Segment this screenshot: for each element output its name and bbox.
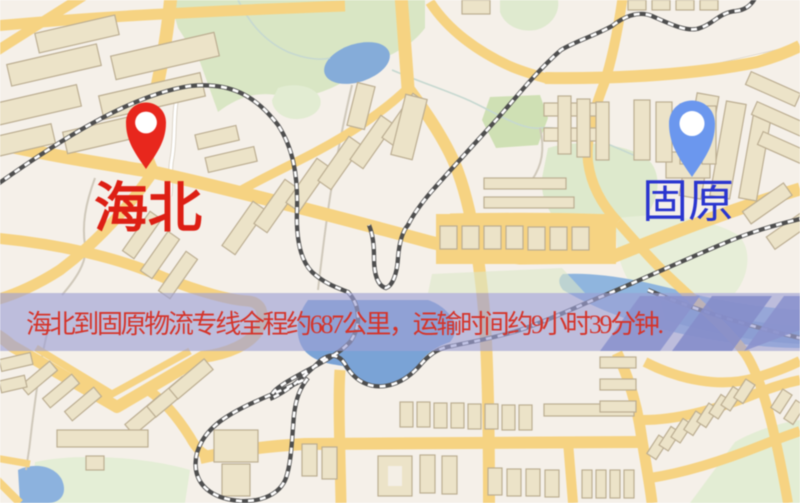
svg-text:固原: 固原 xyxy=(642,175,734,227)
svg-text:海北: 海北 xyxy=(94,179,202,239)
svg-text:海北到固原物流专线全程约687公里，运输时间约9小时39分钟: 海北到固原物流专线全程约687公里，运输时间约9小时39分钟. xyxy=(26,310,663,339)
